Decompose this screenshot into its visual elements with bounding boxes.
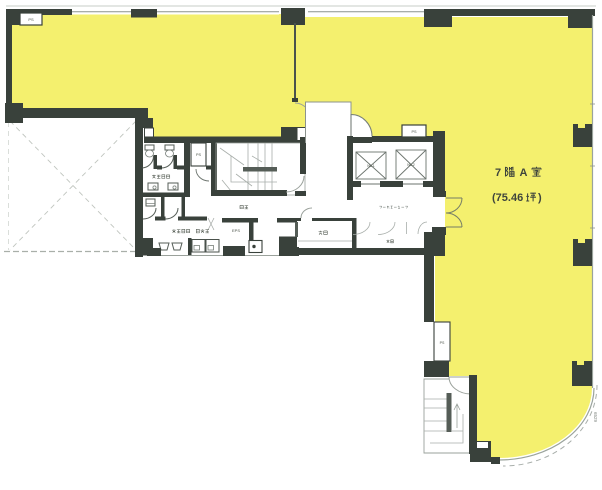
svg-text:PS: PS — [440, 341, 445, 345]
svg-text:EPS: EPS — [232, 228, 240, 233]
svg-text:6529: 6529 — [593, 412, 598, 423]
svg-text:7: 7 — [495, 167, 501, 179]
svg-text:A: A — [520, 167, 528, 179]
svg-text:PS: PS — [411, 130, 417, 134]
svg-text:PS: PS — [28, 17, 34, 22]
svg-text:No.2: No.2 — [407, 163, 415, 167]
svg-text:(75.46: (75.46 — [492, 192, 523, 204]
svg-text:No.1: No.1 — [367, 164, 375, 168]
svg-text:): ) — [538, 192, 542, 204]
svg-text:PS: PS — [196, 153, 202, 157]
